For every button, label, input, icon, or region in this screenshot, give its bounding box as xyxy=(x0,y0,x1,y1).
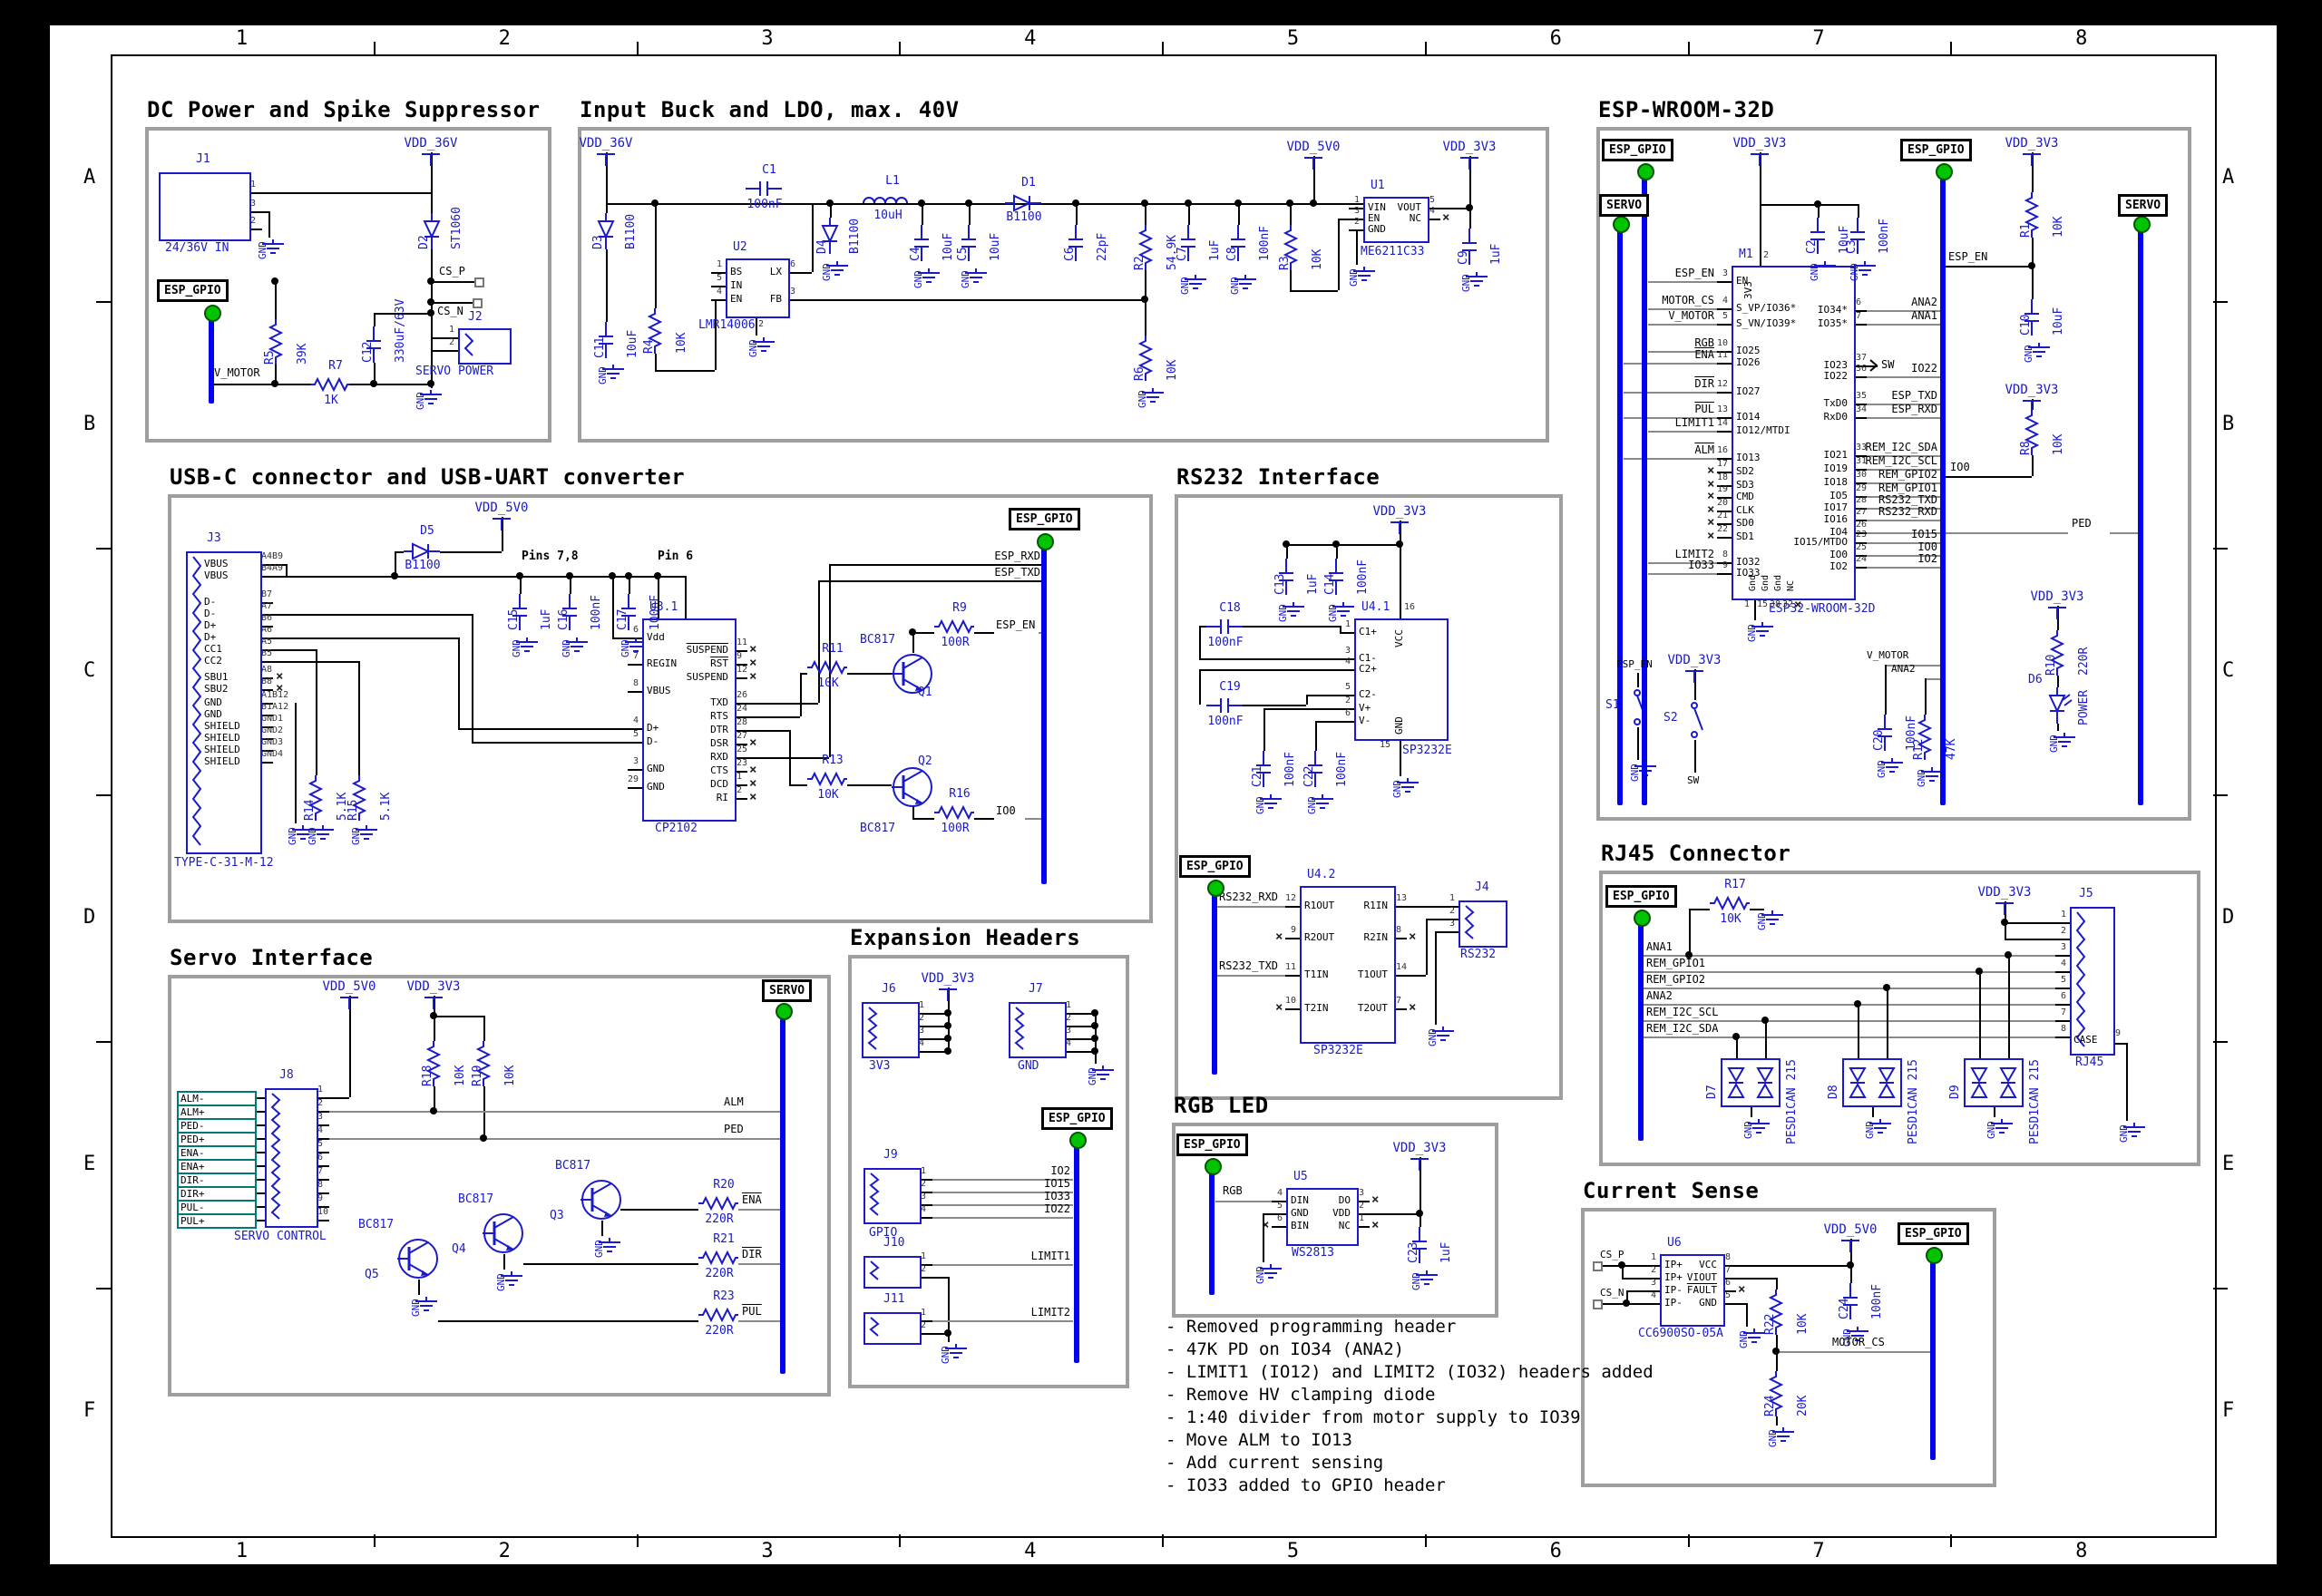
component-value: CP2102 xyxy=(655,822,698,835)
pin-number: 24 xyxy=(737,704,747,714)
gnd-label: GND xyxy=(287,827,298,845)
wire-leader xyxy=(1648,281,1717,283)
pin-name: C2- xyxy=(1359,688,1377,700)
resistor-icon xyxy=(310,377,350,392)
wire xyxy=(1943,266,2032,268)
junction-dot xyxy=(1618,1261,1625,1269)
pin-number: 19 xyxy=(1684,484,1728,494)
junction-dot xyxy=(944,1022,951,1029)
component-value: 100nF xyxy=(1878,219,1891,254)
wire xyxy=(1338,219,1340,290)
component-ref: C1 xyxy=(742,163,796,177)
no-connect-icon: × xyxy=(749,790,756,804)
gnd-label: GND xyxy=(561,639,572,657)
gpio-bus xyxy=(1930,1260,1936,1460)
wire xyxy=(1400,521,1401,618)
pin-name: GND xyxy=(1368,223,1386,235)
component-ref: Q1 xyxy=(918,686,932,699)
gnd-label: GND xyxy=(1229,277,1241,295)
wire xyxy=(374,313,376,326)
diode-icon xyxy=(404,542,440,560)
resistor-icon xyxy=(698,1196,738,1211)
pin-number: 6 xyxy=(2028,991,2066,1001)
gnd-label: GND xyxy=(747,339,759,357)
connector-contacts-icon xyxy=(270,1094,281,1219)
wire xyxy=(818,580,1042,582)
junction-dot xyxy=(427,380,434,387)
power-flag-icon xyxy=(1841,1238,1859,1252)
wire xyxy=(789,784,807,786)
pin-number: 2 xyxy=(1316,217,1360,227)
pin-number: A6 xyxy=(261,625,272,635)
component-value: 10uF xyxy=(941,233,955,261)
power-flag: VDD_3V3 xyxy=(1415,140,1524,154)
wire xyxy=(1717,392,1732,394)
gnd-label: GND xyxy=(1629,764,1641,782)
gnd-label: GND xyxy=(1460,274,1472,292)
wire xyxy=(295,703,297,823)
pin-number: 4 xyxy=(1239,1188,1283,1198)
net-label: LIMIT2 xyxy=(993,1306,1070,1319)
component-value: SERVO CONTROL xyxy=(234,1230,327,1243)
component-ref: D6 xyxy=(2028,673,2043,686)
gnd-label: GND xyxy=(1348,268,1360,287)
pin-name: NC xyxy=(1786,580,1796,591)
wire xyxy=(483,1016,485,1041)
frame-tick xyxy=(96,1288,111,1289)
pin-number: 8 xyxy=(1396,925,1401,935)
net-label: REM_GPIO1 xyxy=(1814,482,1937,494)
net-label: ESP_TXD xyxy=(968,566,1040,579)
wire xyxy=(1285,906,1300,908)
pin-number: 3 xyxy=(595,756,639,766)
power-flag-icon xyxy=(1460,155,1478,170)
junction-dot xyxy=(1185,199,1192,207)
pin-name: VCC xyxy=(1654,1259,1717,1270)
pin-name: SHIELD xyxy=(204,744,240,755)
net-label: ANA2 xyxy=(1646,989,1673,1002)
frame-tick xyxy=(374,1534,376,1547)
net-label: IO0 xyxy=(1950,461,1970,473)
gnd-label: GND xyxy=(1306,796,1318,814)
gpio-bus xyxy=(1642,176,1647,805)
pin-number: 2 xyxy=(317,1098,323,1108)
note-line: - Remove HV clamping diode xyxy=(1166,1385,1435,1405)
junction-dot xyxy=(430,1012,437,1019)
component-ref: U3.1 xyxy=(649,600,678,614)
wire xyxy=(273,614,472,616)
pin-name: SHIELD xyxy=(204,720,240,732)
component-value: 1K xyxy=(298,394,365,407)
section-title-rs232: RS232 Interface xyxy=(1176,464,1380,490)
pin-name: IO12/MTDI xyxy=(1736,424,1790,436)
capacitor-icon xyxy=(1206,619,1243,634)
net-label: PUL xyxy=(742,1305,762,1318)
no-connect-icon: × xyxy=(1707,463,1714,478)
wire xyxy=(316,649,317,775)
wire-leader xyxy=(932,1264,1073,1266)
component-ref: Q5 xyxy=(365,1268,379,1281)
net-label: ESP_TXD xyxy=(1814,389,1937,402)
gnd-label: GND xyxy=(511,639,522,657)
pin-name: IO14 xyxy=(1736,411,1761,423)
component-value: 100nF xyxy=(1335,752,1349,787)
component-ref: J8 xyxy=(279,1068,294,1082)
net-label: IO2 xyxy=(1814,552,1937,565)
frame-tick xyxy=(1162,1534,1164,1547)
pin-number: 12 xyxy=(737,665,747,675)
component-value: 1uF xyxy=(1208,240,1222,261)
wire xyxy=(747,703,818,705)
component-ref: D3 xyxy=(591,235,605,249)
wire xyxy=(1717,281,1732,283)
wire xyxy=(1285,1008,1300,1010)
pin-number: 1 xyxy=(250,180,256,190)
wire xyxy=(1199,669,1201,705)
power-flag-icon xyxy=(2048,605,2066,619)
wire xyxy=(1199,669,1340,671)
component-value: PESD1CAN 215 xyxy=(1785,1059,1799,1144)
gnd-label: GND xyxy=(1916,769,1927,787)
pin-number: 8 xyxy=(595,678,639,688)
component-ref: R3 xyxy=(1278,256,1292,270)
pin-number: 4 xyxy=(1307,657,1351,667)
gnd-label: GND xyxy=(1179,277,1191,295)
component-ref: S1 xyxy=(1605,698,1620,712)
wire xyxy=(628,664,642,666)
net-label: PED xyxy=(2072,517,2092,530)
pin-number: 9 xyxy=(1253,925,1296,935)
component-ref: R23 xyxy=(695,1289,753,1303)
gnd-label: GND xyxy=(960,270,971,288)
component-value: ME6211C33 xyxy=(1361,245,1424,258)
wire xyxy=(440,551,502,553)
component-value: PESD1CAN 215 xyxy=(2028,1059,2042,1144)
wire xyxy=(1637,727,1639,760)
pin-name: VBUS xyxy=(647,685,671,696)
junction-dot xyxy=(1091,1035,1098,1042)
pin-name: DTR xyxy=(665,724,728,735)
pin-name: SBU1 xyxy=(204,671,229,683)
capacitor-icon xyxy=(1206,698,1243,713)
component-ref: R15 xyxy=(346,800,360,821)
component-ref: R2 xyxy=(1133,256,1146,270)
pin-number: 3 xyxy=(317,1112,323,1122)
wire-leader xyxy=(1648,431,1717,433)
wire xyxy=(1776,1416,1778,1426)
wire xyxy=(1285,975,1300,977)
junction-dot xyxy=(965,199,972,207)
net-label: RGB xyxy=(1223,1184,1243,1197)
wire-leader xyxy=(329,1138,783,1140)
pin-name: SD1 xyxy=(1736,530,1754,542)
wire xyxy=(1694,740,1696,773)
net-label: V_MOTOR xyxy=(214,366,260,379)
pin-number: 5 xyxy=(1429,195,1435,205)
pin-number: 1 xyxy=(921,1251,926,1261)
power-flag: VDD_3V3 xyxy=(1705,136,1814,151)
pin-number: 10 xyxy=(1253,996,1296,1006)
frame-col-label: 8 xyxy=(2075,27,2087,50)
junction-dot xyxy=(826,199,834,207)
component-ref: R6 xyxy=(1133,366,1146,381)
wire xyxy=(268,211,270,238)
frame-tick xyxy=(2213,794,2228,796)
wire-leader xyxy=(1867,376,1940,378)
gnd-label: GND xyxy=(620,639,631,657)
pin-number: 1 xyxy=(921,1308,926,1318)
power-flag: VDD_3V3 xyxy=(893,971,1002,986)
wire xyxy=(1994,1106,1995,1117)
frame-row-label: B xyxy=(83,413,95,435)
pin-number: 9 xyxy=(2115,1028,2121,1038)
pin-name: C2+ xyxy=(1359,663,1377,675)
gnd-label: GND xyxy=(940,1346,951,1364)
wire xyxy=(2005,922,2055,924)
junction-dot xyxy=(1283,540,1290,548)
no-connect-icon: × xyxy=(749,763,756,777)
frame-col-label: 2 xyxy=(499,1540,511,1562)
pin-number: GND1 xyxy=(261,714,283,724)
no-connect-icon: × xyxy=(749,669,756,684)
net-label: REM_GPIO1 xyxy=(1646,957,1705,969)
pin-name: V+ xyxy=(1359,702,1371,714)
hier-label: ESP_GPIO xyxy=(1605,885,1677,908)
pin-name: VCC xyxy=(1393,629,1405,647)
junction-dot xyxy=(1234,199,1242,207)
no-connect-icon: × xyxy=(1275,1000,1283,1015)
net-label: SW xyxy=(1687,774,1699,786)
frame-tick xyxy=(2213,1288,2228,1289)
pin-name: Gnd xyxy=(1773,575,1783,591)
component-value: 24/36V IN xyxy=(165,241,229,255)
tvs-diode-icon xyxy=(1965,1059,2023,1106)
wire xyxy=(275,281,277,319)
net-label: ESP_RXD xyxy=(1814,403,1937,415)
gnd-label: GND xyxy=(821,263,833,281)
pin-number: B1A12 xyxy=(261,702,288,712)
pin-number: 5 xyxy=(1725,1290,1731,1300)
net-label: ESP_EN xyxy=(1948,250,1987,263)
wire xyxy=(1370,1213,1420,1215)
frame-row-label: D xyxy=(2222,906,2234,929)
power-flag: VDD_3V3 xyxy=(1365,1141,1474,1155)
component-ref: R1 xyxy=(2019,223,2033,238)
connector-J1 xyxy=(159,172,251,241)
pin-number: B7 xyxy=(261,589,272,599)
wire xyxy=(431,281,477,283)
net-label: ANA2 xyxy=(1814,296,1937,308)
pin-name: R1IN xyxy=(1324,900,1388,911)
pin-name: FB xyxy=(718,293,782,305)
pin-number: 4 xyxy=(1066,1038,1071,1048)
component-ref: U2 xyxy=(733,240,747,254)
component-value: RJ45 xyxy=(2075,1056,2103,1069)
component-ref: R9 xyxy=(931,601,989,615)
net-label: RS232_TXD xyxy=(1219,959,1278,972)
wire xyxy=(273,637,458,639)
junction-dot xyxy=(1396,540,1403,548)
wire-leader xyxy=(1867,417,1940,419)
pin-number: 6 xyxy=(317,1153,323,1163)
component-value: 10K xyxy=(503,1066,517,1086)
pin-name: NC xyxy=(1358,212,1421,224)
annotation: Pin 6 xyxy=(658,550,693,563)
power-flag-icon xyxy=(1304,155,1322,170)
component-value: BC817 xyxy=(860,822,895,835)
frame-col-label: 1 xyxy=(236,27,248,50)
pin-number: 1 xyxy=(678,259,722,269)
pin-number: 10 xyxy=(317,1207,328,1217)
pin-name: Vdd xyxy=(647,631,665,643)
pin-number: 7 xyxy=(317,1166,323,1176)
component-ref: C19 xyxy=(1203,680,1257,694)
pin-name: T2OUT xyxy=(1324,1002,1388,1014)
pin-number: 15 xyxy=(1757,599,1768,609)
wire xyxy=(2055,1036,2070,1038)
pin-name: GND xyxy=(1393,716,1405,735)
wire xyxy=(1407,975,1426,977)
pin-number: 8 xyxy=(1725,1252,1731,1262)
gpio-bus xyxy=(1212,892,1217,1075)
wire xyxy=(628,787,642,789)
pin-name: C1+ xyxy=(1359,626,1377,637)
no-connect-icon: × xyxy=(1409,1000,1416,1015)
pin-number: 3 xyxy=(1316,206,1360,216)
component-value: 1uF xyxy=(1489,244,1503,265)
frame-col-label: 2 xyxy=(499,27,511,50)
component-ref: J5 xyxy=(2079,887,2093,900)
component-ref: J7 xyxy=(1029,982,1043,996)
component-value: LMR14006 xyxy=(698,318,756,332)
wire xyxy=(1751,1106,1752,1117)
frame-tick xyxy=(2213,301,2228,303)
component-ref: R4 xyxy=(642,339,656,354)
wire xyxy=(2055,971,2070,973)
component-ref: Q4 xyxy=(452,1242,466,1256)
frame-col-label: 3 xyxy=(761,27,773,50)
junction-dot xyxy=(1091,1022,1098,1029)
pin-number: 2 xyxy=(2028,926,2066,936)
wire xyxy=(2005,939,2055,940)
wire xyxy=(2055,955,2070,957)
component-ref: C6 xyxy=(1063,247,1077,261)
wire xyxy=(606,249,608,322)
net-label: MOTOR_CS xyxy=(1832,1336,1885,1348)
component-value: BC817 xyxy=(555,1159,590,1173)
wire xyxy=(1760,204,1858,206)
junction-dot xyxy=(271,380,278,387)
power-flag-icon xyxy=(493,516,511,530)
wire-leader xyxy=(932,1217,1073,1219)
pin-number: 3 xyxy=(921,1192,926,1202)
no-connect-icon: × xyxy=(1707,529,1714,543)
pin-name: GND xyxy=(647,781,665,793)
net-label: REM_I2C_SDA xyxy=(1814,441,1937,453)
net-label: ANA1 xyxy=(1814,309,1937,322)
component-value: SERVO POWER xyxy=(415,365,493,378)
pin-number: 18 xyxy=(1684,472,1728,482)
component-value: 3V3 xyxy=(869,1059,890,1073)
component-ref: C18 xyxy=(1203,601,1257,615)
wire xyxy=(431,350,444,352)
junction-dot xyxy=(918,199,925,207)
gnd-label: GND xyxy=(1410,1272,1422,1290)
resistor-icon xyxy=(934,805,974,820)
junction-dot xyxy=(909,628,916,636)
junction-dot xyxy=(1732,1033,1740,1040)
switch-icon xyxy=(1685,700,1703,740)
component-ref: C17 xyxy=(616,609,629,630)
gnd-label: GND xyxy=(1254,796,1266,814)
junction-dot xyxy=(271,277,278,285)
component-ref: J4 xyxy=(1475,881,1489,894)
pin-number: 2 xyxy=(758,319,764,329)
component-ref: J10 xyxy=(883,1236,904,1250)
wire xyxy=(747,730,789,732)
component-value: 100R xyxy=(922,636,989,649)
hier-label: ESP_GPIO xyxy=(1602,139,1673,161)
pin-number: A8 xyxy=(261,665,272,675)
wire xyxy=(434,1016,483,1017)
power-flag: VDD_36V xyxy=(376,136,485,151)
component-ref: C2 xyxy=(1805,239,1819,254)
hier-label: ESP_GPIO xyxy=(1900,139,1972,161)
pin-number: GND2 xyxy=(261,725,283,735)
pin-number: 26 xyxy=(737,690,747,700)
wire xyxy=(1263,708,1265,751)
gpio-bus xyxy=(1617,229,1623,805)
junction-dot xyxy=(427,309,434,316)
wire xyxy=(273,649,316,651)
gnd-label: GND xyxy=(912,270,924,288)
pin-name: SHIELD xyxy=(204,732,240,744)
wire xyxy=(2057,724,2059,731)
net-label: SW xyxy=(1881,358,1894,371)
junction-dot xyxy=(1091,1047,1098,1055)
component-value: 10K xyxy=(1697,912,1764,926)
component-ref: C10 xyxy=(2019,315,2033,336)
pin-number: 7 xyxy=(2028,1007,2066,1017)
pin-number: 2 xyxy=(1066,1013,1071,1023)
component-ref: C14 xyxy=(1323,574,1337,595)
junction-dot xyxy=(480,1134,487,1142)
junction-dot xyxy=(609,572,616,579)
section-buck xyxy=(578,127,1549,443)
wire xyxy=(350,384,431,385)
pin-number: 7 xyxy=(1396,996,1401,1006)
component-ref: D8 xyxy=(1827,1085,1840,1099)
gnd-label: GND xyxy=(350,827,362,845)
resistor-icon xyxy=(934,619,974,634)
component-value: WS2813 xyxy=(1292,1246,1334,1260)
component-value: 10K xyxy=(795,676,862,690)
component-value: 10K xyxy=(454,1066,467,1086)
schematic-page: 1122334455667788AABBCCDDEEFFDC Power and… xyxy=(0,0,2322,1596)
wire-leader xyxy=(932,1320,1073,1322)
wire xyxy=(262,192,431,194)
wire xyxy=(655,370,715,372)
pin-number: 4 xyxy=(921,1204,926,1214)
wire xyxy=(974,632,994,634)
power-flag-icon xyxy=(424,995,443,1009)
pin-number: 1 xyxy=(1359,1213,1364,1223)
component-ref: U1 xyxy=(1371,179,1385,192)
wire xyxy=(1717,573,1732,575)
wire xyxy=(1887,988,1888,1059)
gnd-label: GND xyxy=(1254,1266,1266,1284)
pin-number: 5 xyxy=(317,1139,323,1149)
